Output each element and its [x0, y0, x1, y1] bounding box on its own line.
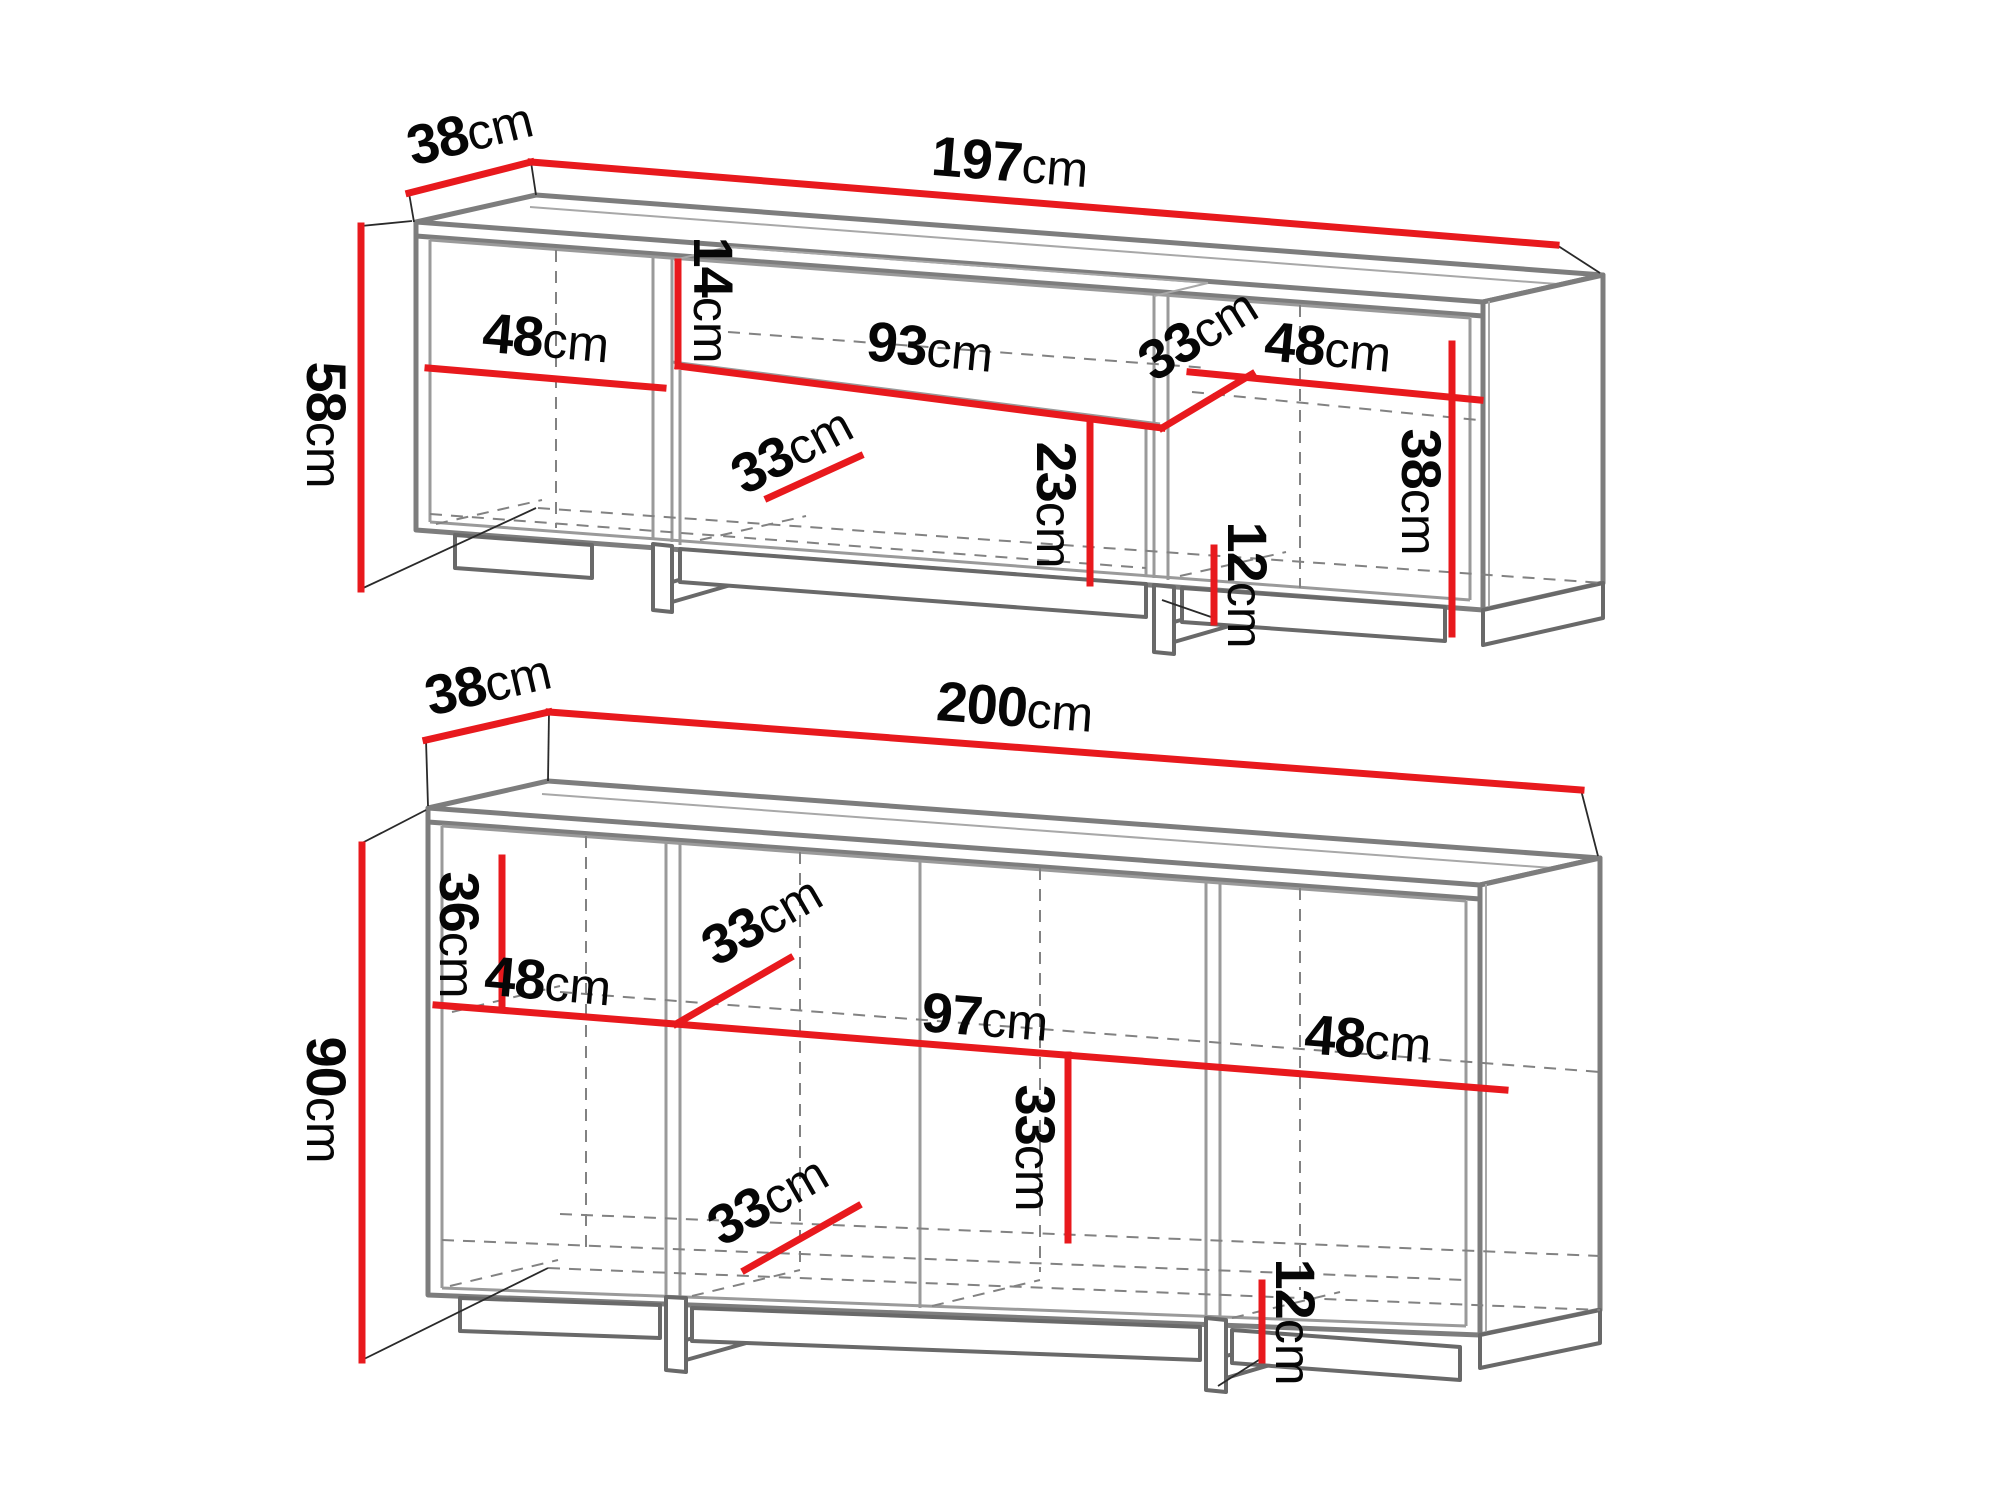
tv-width-label: 197cm [929, 124, 1091, 199]
tv-stand-diagram: 38cm 197cm 58cm 48cm 14cm 93cm 33cm 48cm… [295, 86, 1603, 654]
sb-foot-left-fin [666, 1297, 686, 1372]
sideboard-hidden-edges [442, 836, 1600, 1318]
tv-right-width-label: 48cm [1262, 309, 1394, 384]
sb-width-label: 200cm [934, 669, 1095, 744]
sb-middle-width-label: 97cm [919, 980, 1051, 1053]
tv-middle-height-label: 23cm [1025, 442, 1088, 569]
sb-divider-2 [1206, 881, 1220, 1320]
sb-plinth-left [460, 1298, 660, 1338]
sideboard-labels: 38cm 200cm 90cm 36cm 48cm 33cm 97cm 48cm… [295, 638, 1434, 1386]
tv-divider-left [653, 257, 672, 542]
sb-divider-1 [666, 842, 680, 1298]
sb-plinth-middle [692, 1308, 1200, 1360]
tv-stand-furniture [416, 195, 1603, 654]
tv-left-width-label: 48cm [480, 301, 612, 375]
tv-niche-height-label: 14cm [682, 237, 745, 364]
sb-lower-height-label: 33cm [1004, 1085, 1067, 1212]
tv-foot-left-fin [653, 544, 672, 612]
sb-right-width-label: 48cm [1302, 1002, 1434, 1075]
sb-right-side [1480, 858, 1600, 1335]
sb-left-width-label: 48cm [482, 944, 614, 1018]
furniture-dimension-drawing: 38cm 197cm 58cm 48cm 14cm 93cm 33cm 48cm… [0, 0, 2000, 1500]
diagram-page: 38cm 197cm 58cm 48cm 14cm 93cm 33cm 48cm… [0, 0, 2000, 1500]
tv-plinth-label: 12cm [1216, 522, 1279, 649]
tv-right-side [1483, 275, 1603, 610]
sideboard-diagram: 38cm 200cm 90cm 36cm 48cm 33cm 97cm 48cm… [295, 638, 1600, 1392]
tv-niche-width-label: 93cm [864, 309, 996, 384]
sb-dash-depth-2 [692, 1270, 800, 1296]
tv-right-height-label: 38cm [1390, 429, 1453, 556]
sb-top-section-label: 36cm [428, 872, 491, 999]
sb-plinth-label: 12cm [1264, 1259, 1327, 1386]
tv-foot-right-fin [1154, 585, 1174, 654]
tv-left-width-line [428, 368, 663, 388]
sb-dash-depth-1 [450, 1260, 558, 1286]
sb-height-label: 90cm [295, 1037, 358, 1164]
sb-shelf-depth-label: 33cm [691, 860, 832, 978]
tv-height-label: 58cm [295, 362, 358, 489]
sb-top-lip [542, 794, 1594, 871]
sb-lower-depth-label: 33cm [697, 1140, 838, 1258]
sb-foot-right-fin [1206, 1318, 1226, 1392]
